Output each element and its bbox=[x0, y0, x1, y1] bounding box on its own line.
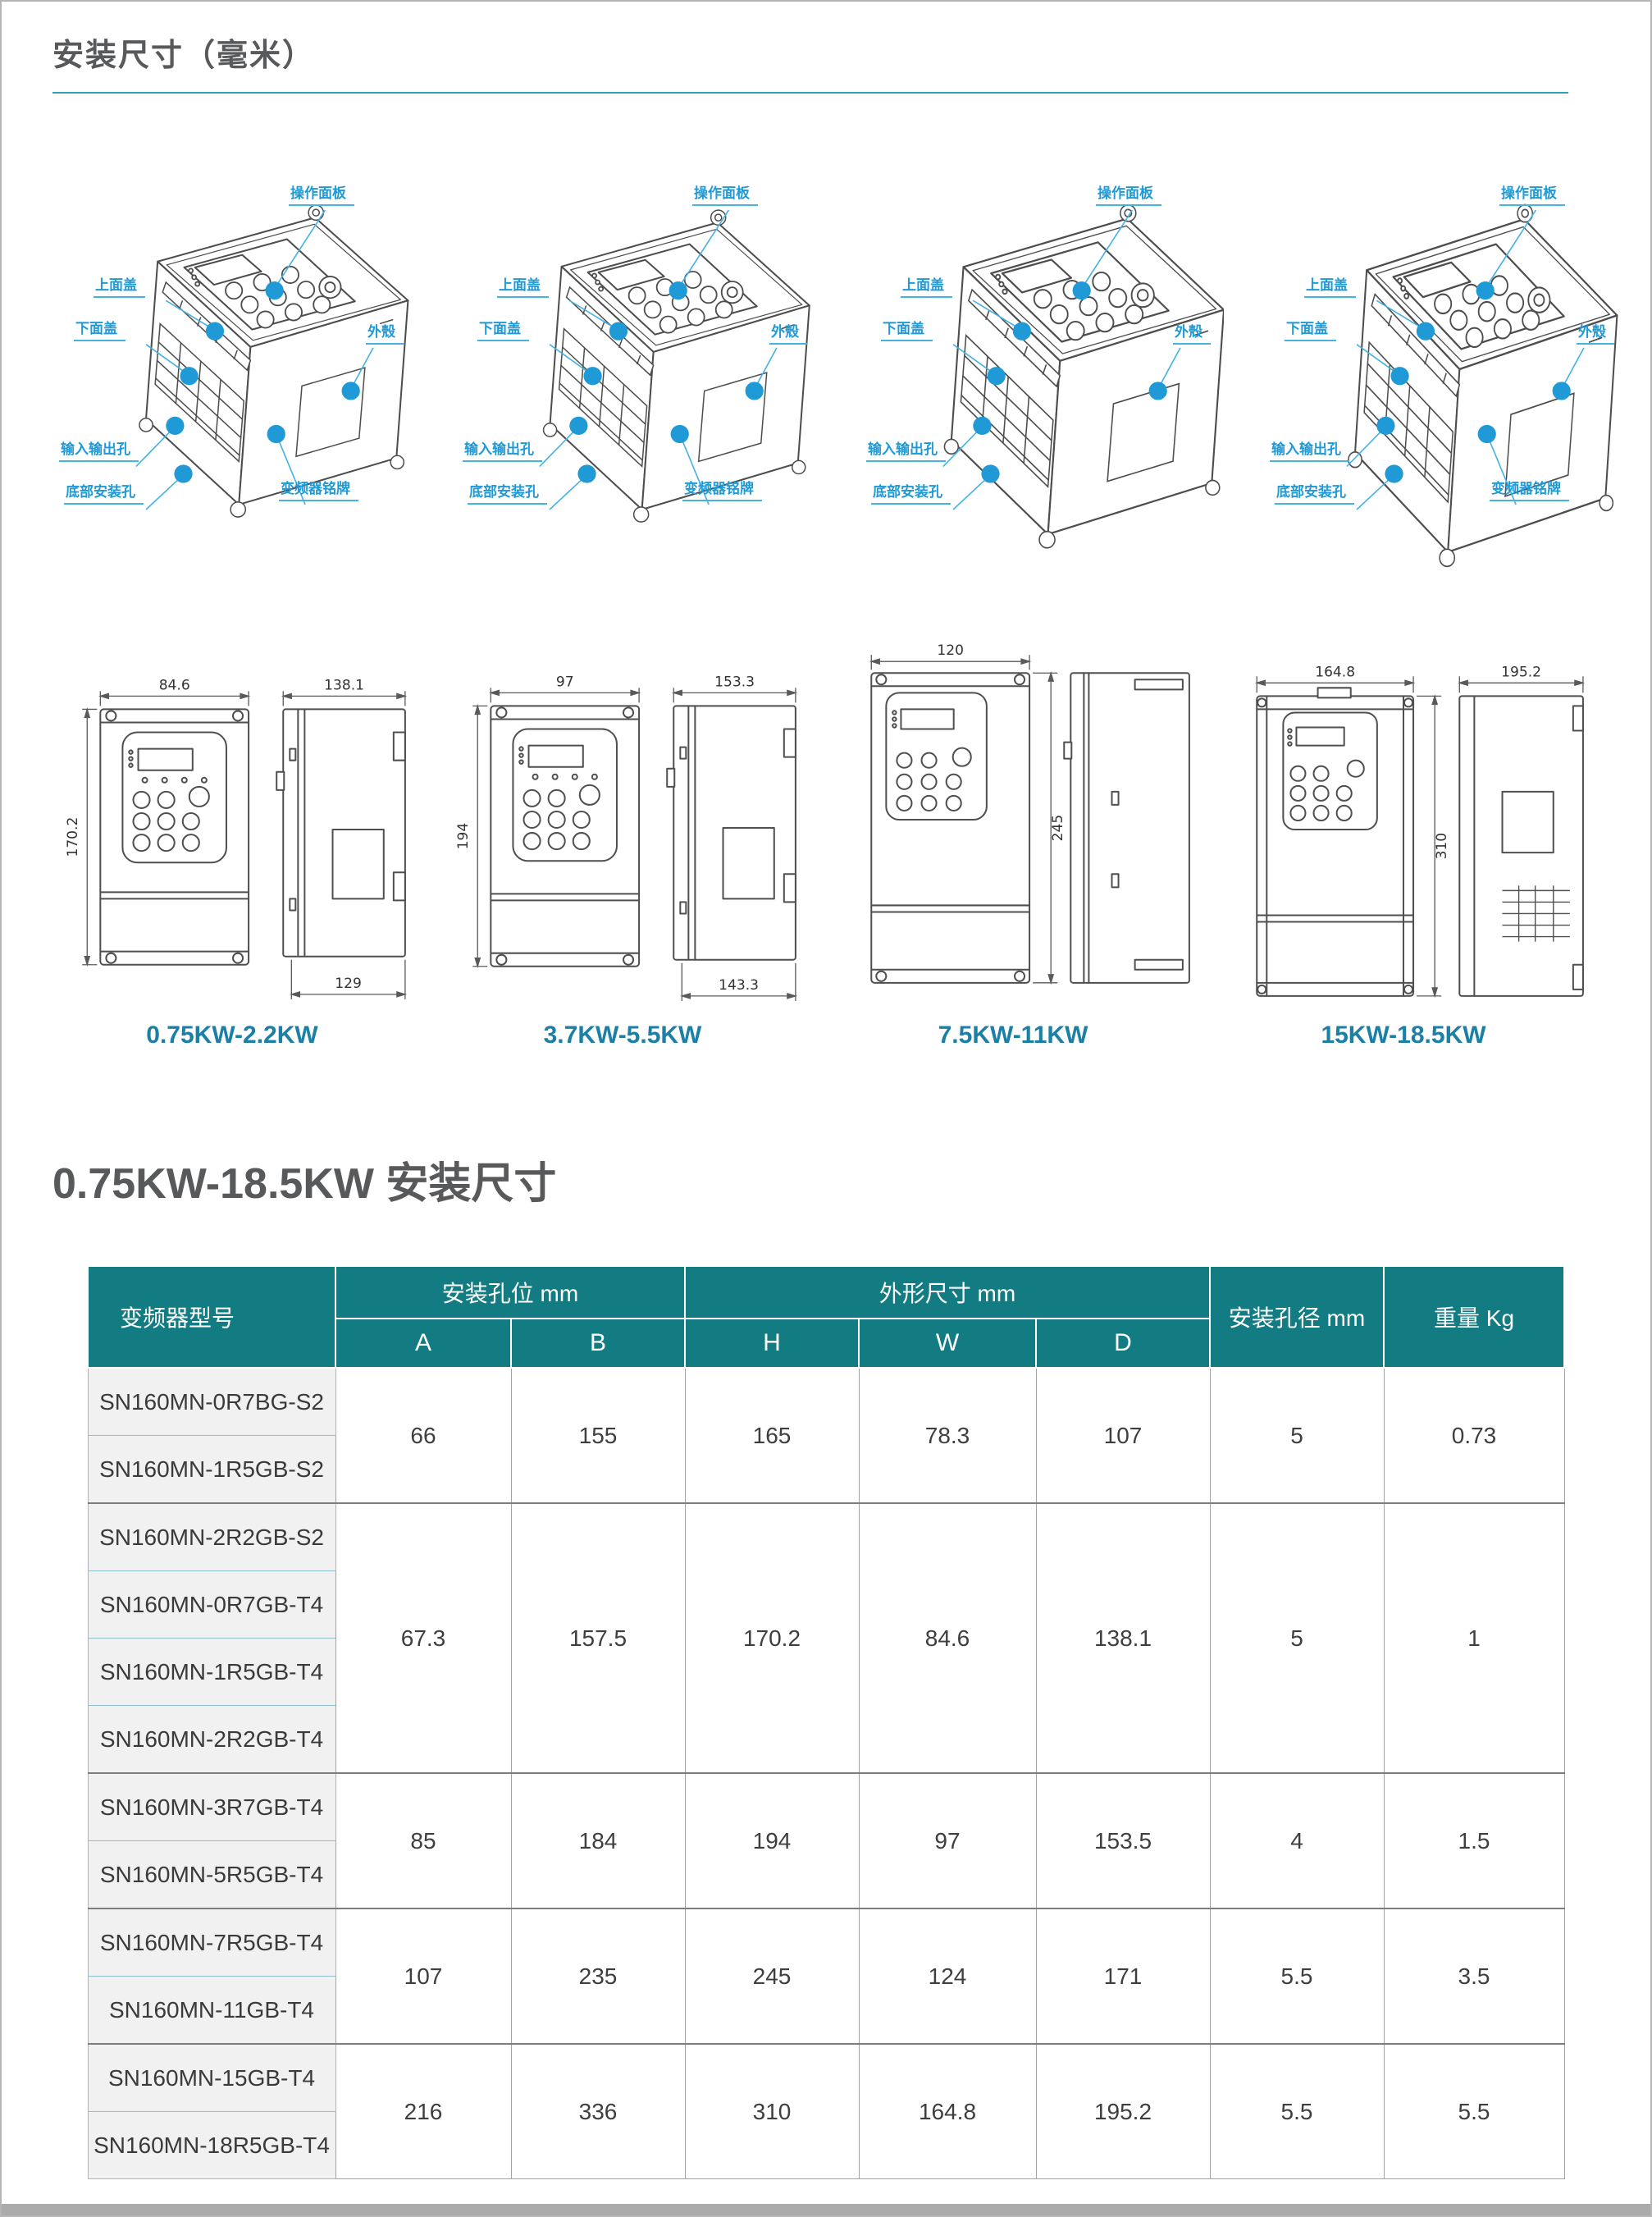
value-cell-D: 195.2 bbox=[1036, 2044, 1210, 2179]
col-group-mount-holes: 安装孔位 mm bbox=[335, 1266, 685, 1319]
value-cell-W: 84.6 bbox=[859, 1503, 1036, 1773]
dimension-drawing: 97 194 153.3 143.3 bbox=[433, 627, 812, 1014]
callout-io-holes: 输入输出孔 bbox=[463, 441, 542, 462]
value-cell-B: 184 bbox=[511, 1773, 685, 1908]
inverter-iso-view-4: 操作面板 上面盖 下面盖 外殼 输入输出孔 底部安装孔 变频器铭牌 bbox=[1235, 125, 1627, 609]
power-range-label: 0.75KW-2.2KW bbox=[43, 1022, 422, 1049]
model-cell: SN160MN-7R5GB-T4 bbox=[88, 1908, 335, 1977]
callout-io-holes: 输入输出孔 bbox=[866, 441, 946, 462]
value-cell-D: 107 bbox=[1036, 1368, 1210, 1503]
value-cell-hole: 5.5 bbox=[1210, 1908, 1384, 2044]
callout-shell: 外殼 bbox=[1577, 324, 1614, 345]
dim-front-width: 97 bbox=[556, 674, 574, 690]
title-divider bbox=[52, 92, 1568, 94]
table-row: SN160MN-2R2GB-S2 67.3 157.5 170.2 84.6 1… bbox=[88, 1503, 1564, 1571]
dim-group-7.5kw-11kw: 120 245 7.5KW-11KW bbox=[824, 627, 1202, 1049]
dim-front-width: 164.8 bbox=[1315, 664, 1355, 680]
value-cell-W: 164.8 bbox=[859, 2044, 1036, 2179]
model-cell: SN160MN-0R7GB-T4 bbox=[88, 1571, 335, 1639]
dimension-drawing: 84.6 170.2 138.1 129 bbox=[43, 627, 422, 1014]
callout-bottom-mount-holes: 底部安装孔 bbox=[1275, 484, 1354, 505]
callout-bottom-cover: 下面盖 bbox=[1285, 321, 1336, 341]
inverter-iso-view-1: 操作面板 上面盖 下面盖 外殼 输入输出孔 底部安装孔 变频器铭牌 bbox=[25, 125, 417, 609]
installation-dimensions-table: 变频器型号 安装孔位 mm 外形尺寸 mm 安装孔径 mm 重量 Kg A B … bbox=[87, 1265, 1565, 2179]
table-row: SN160MN-7R5GB-T4 107 235 245 124 171 5.5… bbox=[88, 1908, 1564, 1977]
callout-top-cover: 上面盖 bbox=[94, 277, 145, 298]
value-cell-A: 216 bbox=[335, 2044, 511, 2179]
col-header-W: W bbox=[859, 1319, 1036, 1368]
callout-io-holes: 输入输出孔 bbox=[1270, 441, 1349, 462]
callout-bottom-mount-holes: 底部安装孔 bbox=[871, 484, 951, 505]
side-view bbox=[1459, 696, 1583, 996]
col-header-hole-dia: 安装孔径 mm bbox=[1210, 1266, 1384, 1368]
callout-operation-panel: 操作面板 bbox=[1096, 185, 1161, 206]
callout-operation-panel: 操作面板 bbox=[692, 185, 758, 206]
value-cell-H: 310 bbox=[685, 2044, 859, 2179]
callout-top-cover: 上面盖 bbox=[901, 277, 952, 298]
power-range-label: 7.5KW-11KW bbox=[824, 1022, 1202, 1049]
model-cell: SN160MN-2R2GB-S2 bbox=[88, 1503, 335, 1571]
callout-nameplate: 变频器铭牌 bbox=[279, 481, 358, 501]
dim-side-width: 153.3 bbox=[714, 674, 755, 690]
col-header-B: B bbox=[511, 1319, 685, 1368]
front-view bbox=[100, 709, 249, 964]
value-cell-hole: 5.5 bbox=[1210, 2044, 1384, 2179]
front-view bbox=[871, 673, 1029, 983]
value-cell-H: 245 bbox=[685, 1908, 859, 2044]
value-cell-A: 66 bbox=[335, 1368, 511, 1503]
callout-nameplate: 变频器铭牌 bbox=[1490, 481, 1569, 501]
dim-side-width: 138.1 bbox=[324, 677, 364, 693]
value-cell-A: 107 bbox=[335, 1908, 511, 2044]
dimension-drawing: 164.8 310 195.2 bbox=[1214, 627, 1593, 1014]
callout-bottom-mount-holes: 底部安装孔 bbox=[468, 484, 547, 505]
col-header-weight: 重量 Kg bbox=[1384, 1266, 1564, 1368]
isometric-view-row: 操作面板 上面盖 下面盖 外殼 输入输出孔 底部安装孔 变频器铭牌 bbox=[25, 125, 1631, 617]
value-cell-hole: 5 bbox=[1210, 1368, 1384, 1503]
power-range-label: 3.7KW-5.5KW bbox=[433, 1022, 812, 1049]
value-cell-D: 171 bbox=[1036, 1908, 1210, 2044]
value-cell-D: 138.1 bbox=[1036, 1503, 1210, 1773]
dim-front-width: 120 bbox=[937, 642, 964, 659]
callout-shell: 外殼 bbox=[1173, 324, 1211, 345]
dim-side-width: 195.2 bbox=[1501, 664, 1541, 680]
col-header-H: H bbox=[685, 1319, 859, 1368]
page-bottom-edge bbox=[2, 2204, 1650, 2215]
value-cell-A: 85 bbox=[335, 1773, 511, 1908]
callout-io-holes: 输入输出孔 bbox=[59, 441, 139, 462]
callout-operation-panel: 操作面板 bbox=[289, 185, 354, 206]
value-cell-weight: 1.5 bbox=[1384, 1773, 1564, 1908]
model-cell: SN160MN-15GB-T4 bbox=[88, 2044, 335, 2112]
value-cell-weight: 5.5 bbox=[1384, 2044, 1564, 2179]
table-row: SN160MN-3R7GB-T4 85 184 194 97 153.5 4 1… bbox=[88, 1773, 1564, 1841]
callout-top-cover: 上面盖 bbox=[1304, 277, 1356, 298]
model-cell: SN160MN-2R2GB-T4 bbox=[88, 1706, 335, 1774]
dim-front-height: 310 bbox=[1434, 833, 1450, 860]
inverter-drawing bbox=[25, 125, 417, 589]
model-cell: SN160MN-5R5GB-T4 bbox=[88, 1841, 335, 1909]
inverter-drawing bbox=[428, 125, 820, 589]
value-cell-weight: 3.5 bbox=[1384, 1908, 1564, 2044]
value-cell-H: 170.2 bbox=[685, 1503, 859, 1773]
dim-side-bottom: 129 bbox=[335, 976, 362, 992]
dim-front-width: 84.6 bbox=[159, 677, 190, 693]
side-view bbox=[667, 706, 796, 959]
power-range-label: 15KW-18.5KW bbox=[1214, 1022, 1593, 1049]
page-title: 安装尺寸（毫米） bbox=[52, 30, 315, 75]
manual-page: 安装尺寸（毫米） bbox=[0, 0, 1652, 2217]
col-header-A: A bbox=[335, 1319, 511, 1368]
callout-bottom-cover: 下面盖 bbox=[881, 321, 933, 341]
dim-front-height: 245 bbox=[1050, 815, 1066, 842]
value-cell-W: 78.3 bbox=[859, 1368, 1036, 1503]
value-cell-B: 157.5 bbox=[511, 1503, 685, 1773]
model-cell: SN160MN-18R5GB-T4 bbox=[88, 2112, 335, 2179]
front-view bbox=[1257, 688, 1413, 996]
callout-nameplate: 变频器铭牌 bbox=[682, 481, 762, 501]
value-cell-B: 336 bbox=[511, 2044, 685, 2179]
dim-group-15kw-18.5kw: 164.8 310 195.2 15KW-18.5KW bbox=[1214, 627, 1593, 1049]
value-cell-A: 67.3 bbox=[335, 1503, 511, 1773]
callout-operation-panel: 操作面板 bbox=[1499, 185, 1565, 206]
callout-shell: 外殼 bbox=[366, 324, 404, 345]
col-group-outline: 外形尺寸 mm bbox=[685, 1266, 1210, 1319]
dimension-drawings-row: 84.6 170.2 138.1 129 0.75KW-2.2KW bbox=[43, 627, 1613, 1049]
section-title: 0.75KW-18.5KW 安装尺寸 bbox=[52, 1149, 556, 1210]
inverter-drawing bbox=[832, 125, 1224, 589]
side-view bbox=[276, 709, 405, 956]
front-view bbox=[491, 706, 639, 966]
callout-shell: 外殼 bbox=[769, 324, 807, 345]
value-cell-W: 97 bbox=[859, 1773, 1036, 1908]
col-header-D: D bbox=[1036, 1319, 1210, 1368]
model-cell: SN160MN-11GB-T4 bbox=[88, 1977, 335, 2045]
col-header-model: 变频器型号 bbox=[88, 1266, 335, 1368]
value-cell-D: 153.5 bbox=[1036, 1773, 1210, 1908]
inverter-iso-view-3: 操作面板 上面盖 下面盖 外殼 输入输出孔 底部安装孔 bbox=[832, 125, 1224, 609]
model-cell: SN160MN-1R5GB-S2 bbox=[88, 1436, 335, 1504]
callout-bottom-mount-holes: 底部安装孔 bbox=[64, 484, 144, 505]
value-cell-H: 194 bbox=[685, 1773, 859, 1908]
dimension-drawing: 120 245 bbox=[824, 627, 1202, 1014]
callout-top-cover: 上面盖 bbox=[497, 277, 549, 298]
dim-front-height: 194 bbox=[455, 823, 472, 850]
dim-group-0.75kw-2.2kw: 84.6 170.2 138.1 129 0.75KW-2.2KW bbox=[43, 627, 422, 1049]
table-row: SN160MN-0R7BG-S2 66 155 165 78.3 107 5 0… bbox=[88, 1368, 1564, 1436]
table-row: SN160MN-15GB-T4 216 336 310 164.8 195.2 … bbox=[88, 2044, 1564, 2112]
value-cell-hole: 4 bbox=[1210, 1773, 1384, 1908]
model-cell: SN160MN-1R5GB-T4 bbox=[88, 1639, 335, 1706]
inverter-iso-view-2: 操作面板 上面盖 下面盖 外殼 输入输出孔 底部安装孔 变频器铭牌 bbox=[428, 125, 820, 609]
callout-bottom-cover: 下面盖 bbox=[477, 321, 529, 341]
value-cell-weight: 0.73 bbox=[1384, 1368, 1564, 1503]
value-cell-W: 124 bbox=[859, 1908, 1036, 2044]
value-cell-H: 165 bbox=[685, 1368, 859, 1503]
callout-bottom-cover: 下面盖 bbox=[74, 321, 125, 341]
dim-front-height: 170.2 bbox=[65, 817, 81, 857]
dim-side-bottom: 143.3 bbox=[719, 977, 759, 994]
value-cell-weight: 1 bbox=[1384, 1503, 1564, 1773]
value-cell-B: 235 bbox=[511, 1908, 685, 2044]
value-cell-B: 155 bbox=[511, 1368, 685, 1503]
model-cell: SN160MN-0R7BG-S2 bbox=[88, 1368, 335, 1436]
dim-group-3.7kw-5.5kw: 97 194 153.3 143.3 3.7KW-5.5KW bbox=[433, 627, 812, 1049]
inverter-drawing bbox=[1235, 125, 1627, 589]
value-cell-hole: 5 bbox=[1210, 1503, 1384, 1773]
side-view bbox=[1064, 673, 1189, 983]
model-cell: SN160MN-3R7GB-T4 bbox=[88, 1773, 335, 1841]
